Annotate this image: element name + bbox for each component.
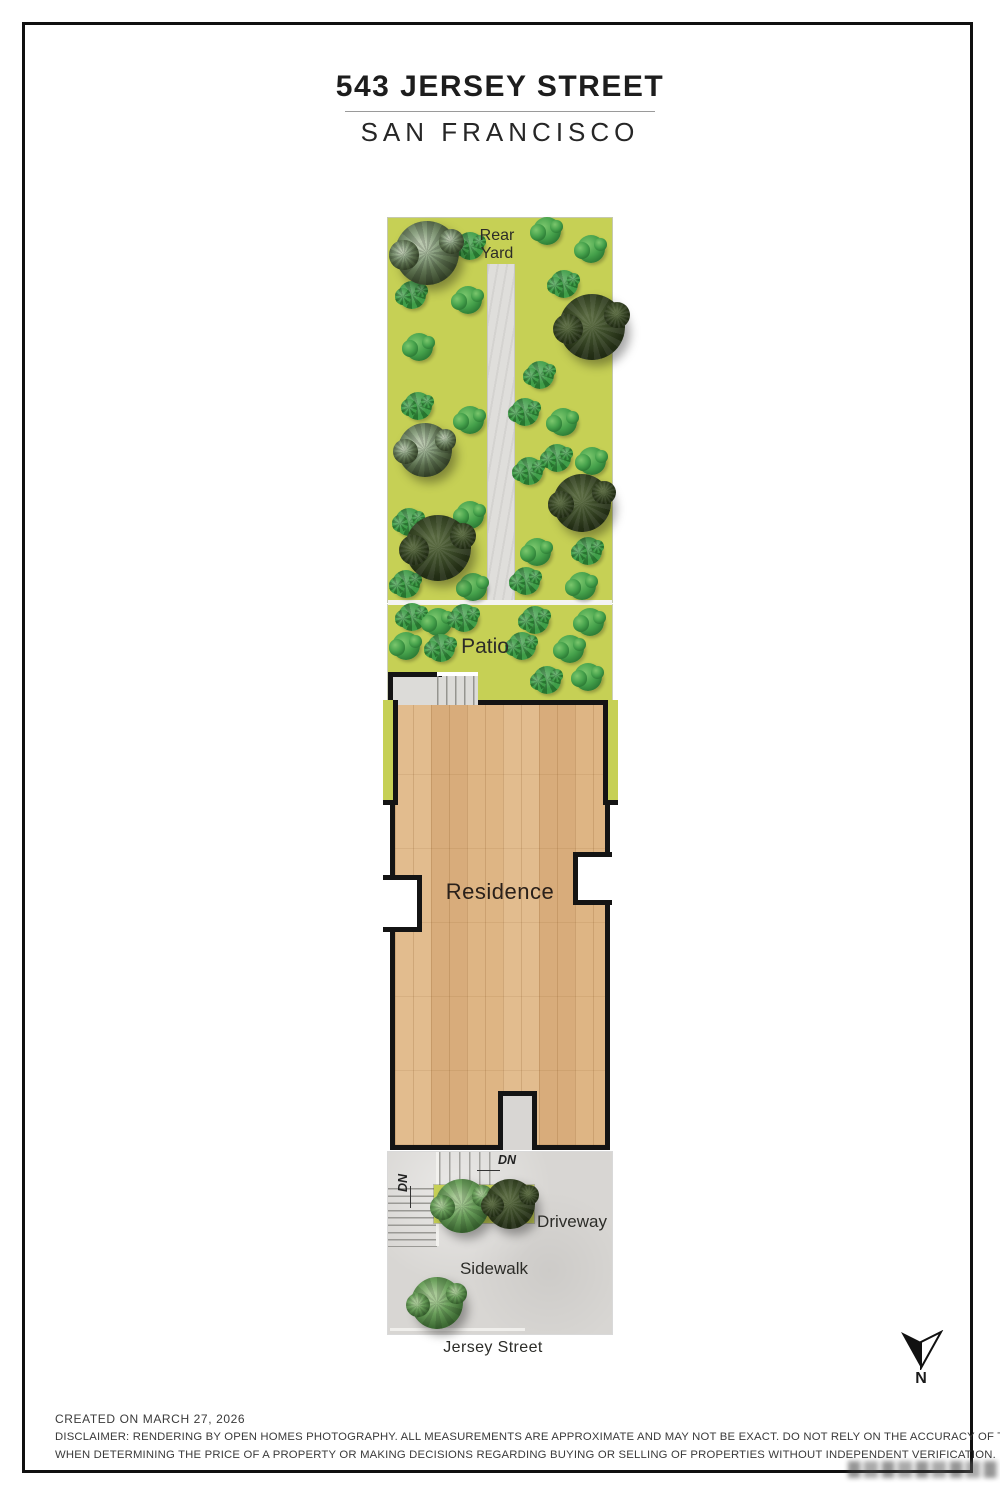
photographer-watermark	[848, 1461, 1000, 1478]
bush-icon	[574, 663, 602, 691]
rear-stairs	[388, 672, 478, 705]
rear-yard-label: Rear Yard	[469, 227, 525, 264]
title-divider	[345, 111, 655, 112]
tree-icon	[405, 515, 471, 581]
garden-path	[487, 264, 515, 602]
dn-label-left: DN	[396, 1156, 410, 1192]
bush-icon	[533, 666, 561, 694]
bush-icon	[456, 406, 484, 434]
residence-label: Residence	[400, 879, 600, 905]
tree-icon	[553, 474, 611, 532]
bush-icon	[574, 537, 602, 565]
bush-icon	[450, 604, 478, 632]
north-label: N	[898, 1370, 944, 1388]
driveway-label: Driveway	[536, 1212, 608, 1232]
dn-center-leader-line	[477, 1170, 500, 1171]
bush-icon	[511, 398, 539, 426]
bush-icon	[459, 573, 487, 601]
north-arrow-icon	[898, 1330, 944, 1370]
rear-stairs-steps	[437, 676, 478, 705]
tree-icon	[485, 1179, 535, 1229]
bush-icon	[523, 538, 551, 566]
disclaimer-line-1: DISCLAIMER: RENDERING BY OPEN HOMES PHOT…	[55, 1431, 1000, 1443]
sidewalk-label: Sidewalk	[454, 1259, 534, 1279]
bush-icon	[404, 392, 432, 420]
yard-fence-line	[388, 600, 612, 605]
front-stairs-left	[388, 1188, 437, 1247]
bush-icon	[568, 572, 596, 600]
tree-icon	[411, 1277, 463, 1329]
disclaimer-line-2: WHEN DETERMINING THE PRICE OF A PROPERTY…	[55, 1449, 996, 1461]
bush-icon	[577, 235, 605, 263]
bush-icon	[392, 570, 420, 598]
bush-icon	[392, 632, 420, 660]
side-yard-strip-right	[603, 700, 618, 805]
bush-icon	[550, 270, 578, 298]
bush-icon	[521, 606, 549, 634]
bush-icon	[454, 286, 482, 314]
dn-left-leader-line	[410, 1186, 411, 1208]
bush-icon	[398, 281, 426, 309]
bush-icon	[576, 608, 604, 636]
bush-icon	[405, 333, 433, 361]
bush-icon	[515, 457, 543, 485]
page-title: 543 JERSEY STREET	[0, 70, 1000, 104]
page-subtitle: SAN FRANCISCO	[0, 117, 1000, 148]
tree-icon	[395, 221, 459, 285]
bush-icon	[549, 408, 577, 436]
created-date-text: CREATED ON MARCH 27, 2026	[55, 1412, 245, 1426]
tree-icon	[559, 294, 625, 360]
bush-icon	[543, 444, 571, 472]
bush-icon	[578, 447, 606, 475]
patio-label: Patio	[445, 635, 525, 659]
bush-icon	[526, 361, 554, 389]
side-yard-strip-left	[383, 700, 398, 805]
bush-icon	[556, 635, 584, 663]
front-entry-recess	[498, 1091, 537, 1150]
street-label: Jersey Street	[413, 1339, 573, 1357]
bush-icon	[512, 567, 540, 595]
bush-icon	[533, 217, 561, 245]
tree-icon	[398, 423, 452, 477]
residence-footprint	[390, 700, 610, 1150]
dn-label-center: DN	[498, 1153, 516, 1167]
